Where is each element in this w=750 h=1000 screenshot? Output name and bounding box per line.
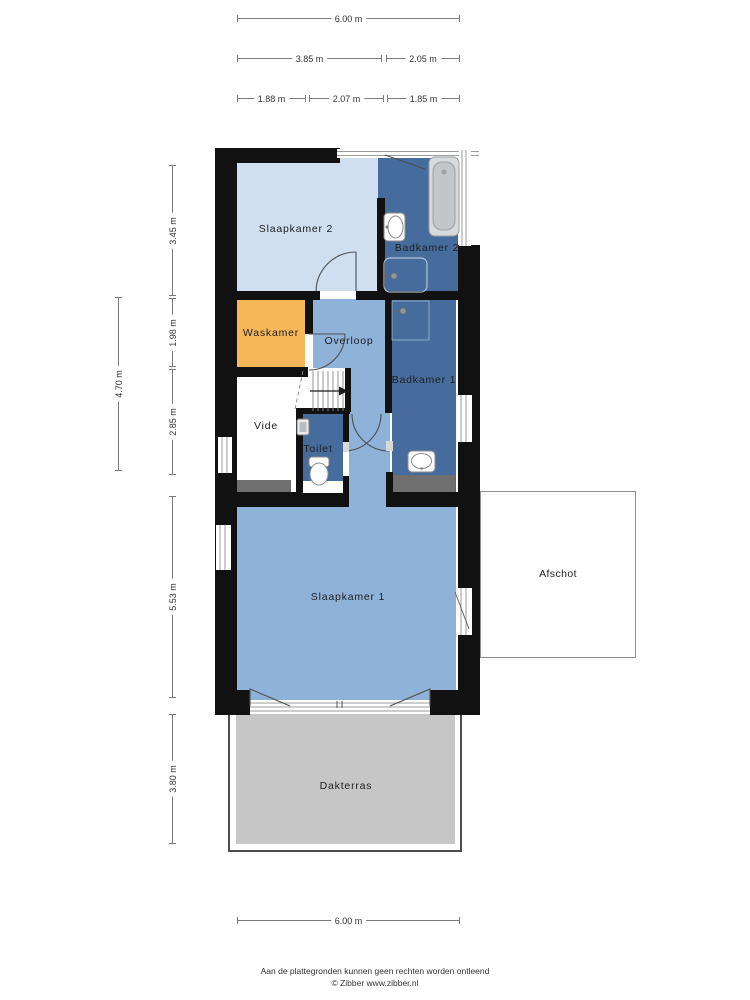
label-afschot: Afschot (539, 568, 577, 580)
label-slaapkamer1: Slaapkamer 1 (311, 591, 385, 603)
label-overloop: Overloop (324, 335, 373, 347)
door-badkamer1 (352, 414, 389, 451)
sink-badkamer2-icon (384, 213, 405, 241)
label-badkamer1: Badkamer 1 (392, 374, 457, 386)
window-badkamer1 (457, 395, 472, 442)
shower-area-badkamer2 (384, 258, 427, 292)
shower-area-badkamer1 (392, 301, 429, 340)
door-jamb-badkamer1 (386, 441, 393, 451)
label-slaapkamer2: Slaapkamer 2 (259, 223, 333, 235)
sink-toilet-icon (297, 419, 309, 435)
terrace-door-strip (250, 700, 430, 714)
label-vide: Vide (254, 420, 278, 432)
window-slaapkamer1-right (455, 588, 472, 635)
door-slaapkamer2 (316, 252, 356, 291)
label-toilet: Toilet (303, 443, 332, 455)
plan-overlay (0, 0, 750, 1000)
window-top-strip (337, 149, 480, 158)
shower-head-badkamer1-icon (393, 308, 406, 314)
window-left-upper (218, 437, 232, 473)
door-jamb-toilet (343, 442, 349, 452)
label-waskamer: Waskamer (243, 327, 299, 339)
toilet-bowl-icon (309, 457, 329, 485)
footer-disclaimer: Aan de plattegronden kunnen geen rechten… (0, 966, 750, 976)
window-left-lower (216, 525, 231, 570)
floorplan-canvas: 6.00 m 3.85 m 2.05 m 1.88 m 2.07 m 1.85 … (0, 0, 750, 1000)
door-toilet (344, 414, 381, 451)
shower-head-badkamer2-icon (384, 273, 397, 279)
bathtub-icon (429, 157, 459, 236)
label-badkamer2: Badkamer 2 (395, 242, 460, 254)
window-corner-right (459, 150, 471, 246)
sink-badkamer1-icon (408, 451, 435, 472)
footer-credit: © Zibber www.zibber.nl (0, 978, 750, 988)
stairs-arrow-icon (310, 387, 348, 396)
label-dakterras: Dakterras (320, 780, 373, 792)
